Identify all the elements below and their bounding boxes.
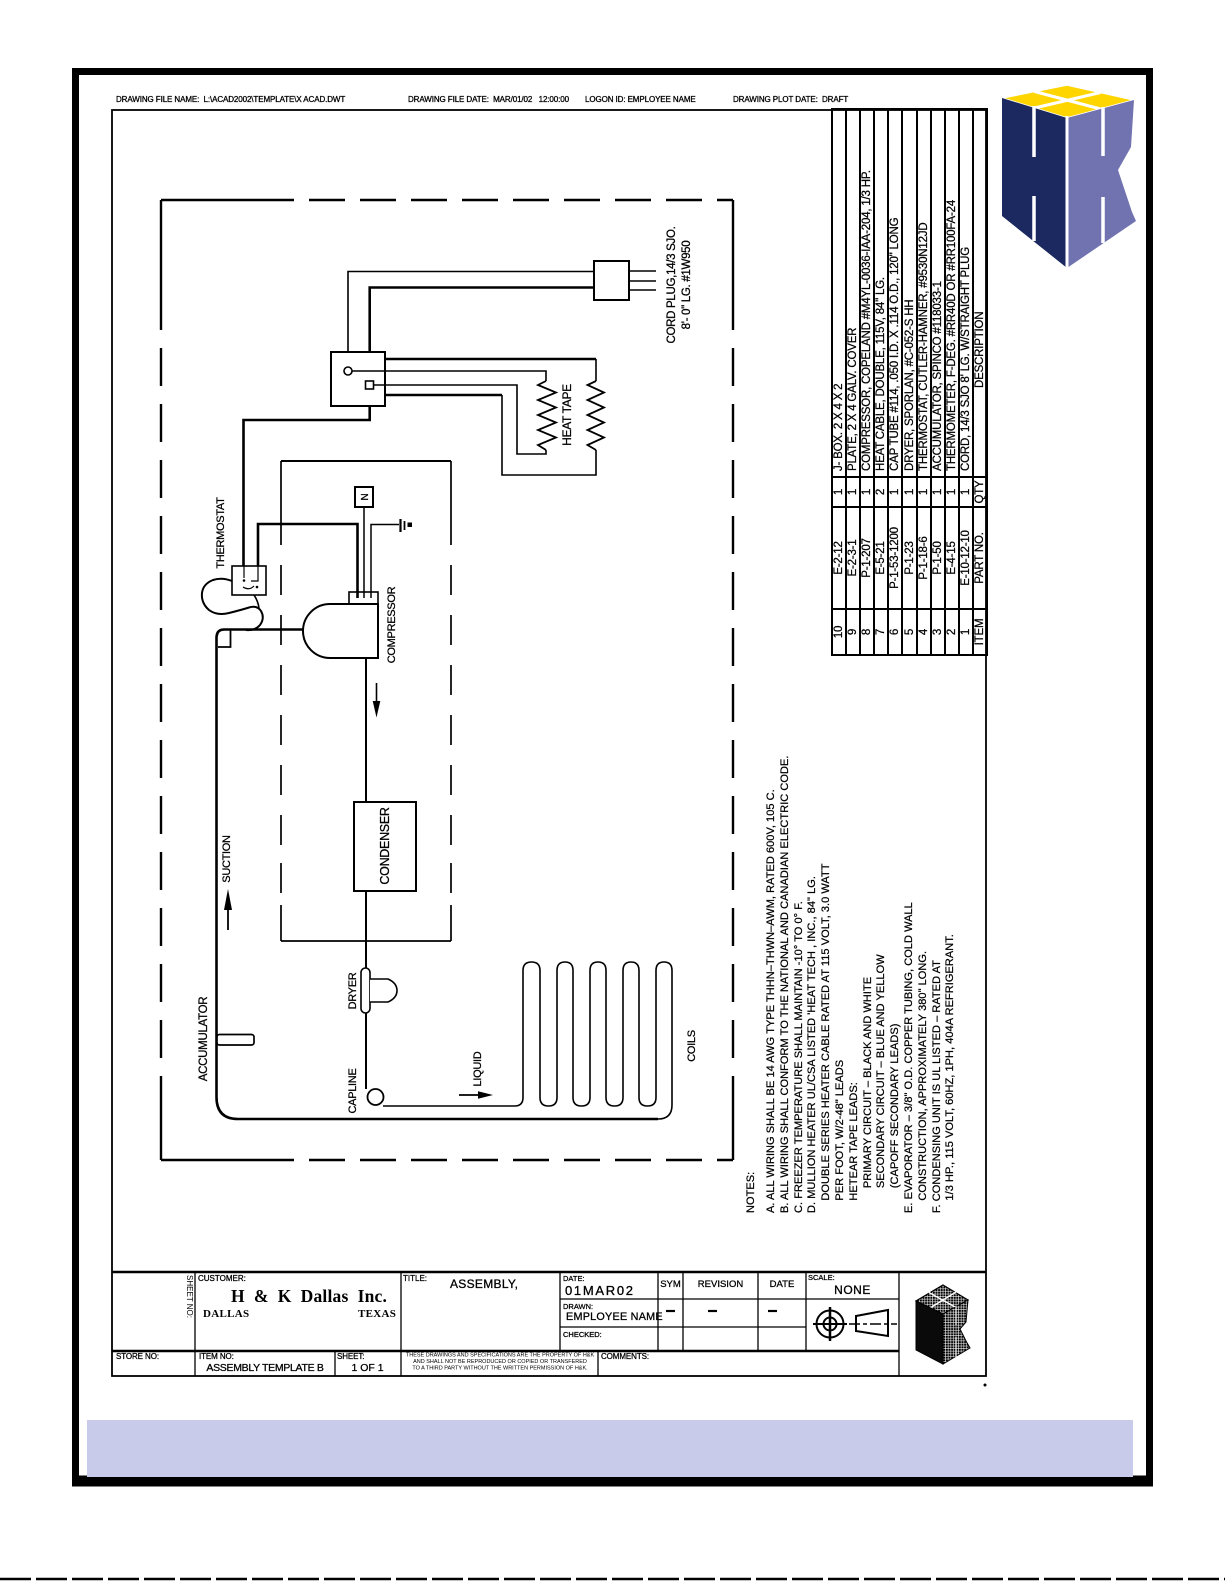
- svg-text:COILS: COILS: [686, 1030, 698, 1062]
- svg-text:N: N: [360, 493, 371, 500]
- svg-text:SUCTION: SUCTION: [221, 835, 233, 883]
- svg-text:HEAT TAPE: HEAT TAPE: [560, 384, 574, 446]
- svg-text:CONDENSER: CONDENSER: [378, 807, 392, 884]
- svg-text:CAPLINE: CAPLINE: [347, 1069, 359, 1114]
- svg-text:8'- 0" LG. #1W950: 8'- 0" LG. #1W950: [681, 241, 693, 330]
- svg-text:CORD PLUG,14/3 SJO.: CORD PLUG,14/3 SJO.: [666, 226, 678, 343]
- svg-text:LIQUID: LIQUID: [472, 1051, 484, 1086]
- svg-text:DRYER: DRYER: [347, 972, 359, 1009]
- svg-text:COMPRESSOR: COMPRESSOR: [386, 586, 398, 663]
- svg-text:ACCUMULATOR: ACCUMULATOR: [198, 997, 210, 1081]
- svg-text:THERMOSTAT: THERMOSTAT: [215, 497, 227, 569]
